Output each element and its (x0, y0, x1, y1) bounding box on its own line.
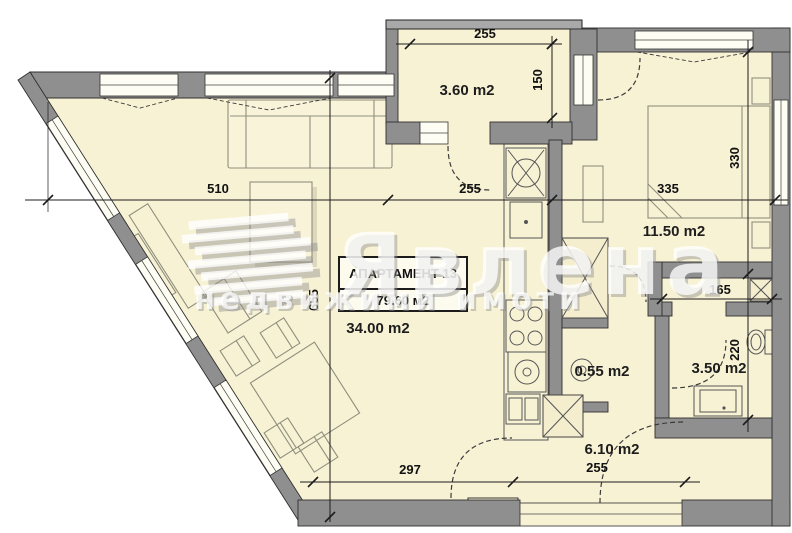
floor-plan-svg: 510 255 335 655 255 150 330 220 165 (0, 0, 792, 533)
dim-bedroom-height: 330 (727, 147, 742, 169)
watermark-tagline: недвижими имоти (194, 282, 586, 317)
shaft-area-label: 0.55 m2 (574, 363, 629, 380)
dim-bathroom-height: 220 (727, 339, 742, 361)
living-area-label: 34.00 m2 (346, 320, 409, 337)
dim-entry-width: 255 (586, 460, 608, 475)
dim-bedroom-width: 335 (657, 181, 679, 196)
bathroom-area-label: 3.50 m2 (691, 360, 746, 377)
shaft (543, 395, 583, 437)
balcony-area-label: 3.60 m2 (439, 82, 494, 99)
small-closet (750, 279, 772, 301)
door-opening (574, 55, 593, 105)
dim-kitchen-width: 255 (459, 181, 481, 196)
floor-plan-screenshot: 510 255 335 655 255 150 330 220 165 (0, 0, 792, 533)
dim-balcony-width: 255 (474, 26, 496, 41)
dim-living-width: 510 (207, 181, 229, 196)
dim-balcony-depth: 150 (530, 69, 545, 91)
hall-area-label: 6.10 m2 (584, 441, 639, 458)
dim-hall-length: 297 (399, 462, 421, 477)
entry-threshold (520, 503, 682, 526)
watermark: Явлена Явлена недвижими имоти недвижими … (180, 211, 727, 319)
